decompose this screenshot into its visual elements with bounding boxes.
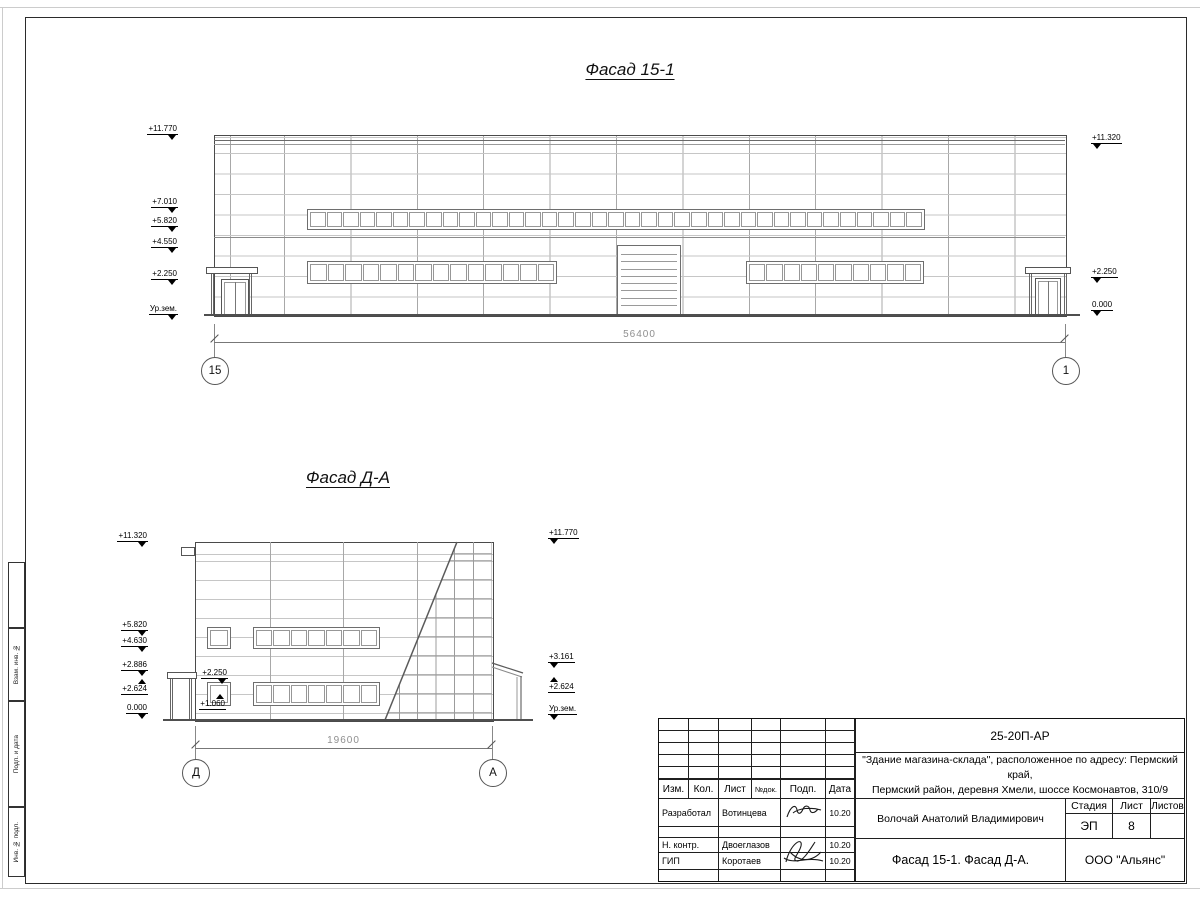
facade2-left-porch-post [170, 679, 173, 719]
elevation-mark: +2.250 [108, 269, 178, 285]
trim-left [2, 7, 3, 889]
facade2-upper-window [207, 627, 231, 649]
tb-header-list: Лист [718, 779, 752, 799]
tb-name: Двоеглазов [718, 837, 781, 853]
elevation-mark: +5.820 [108, 216, 178, 232]
side-stamp-vzam: Взам. инв. № [8, 628, 25, 701]
facade1-parapet-line [214, 140, 1065, 141]
facade2-title: Фасад Д-А [258, 468, 438, 488]
tb-name: Вотинцева [718, 798, 781, 827]
facade2-lower-window-band [253, 682, 380, 706]
facade1-left-canopy [206, 267, 258, 274]
axis-bubble-d: Д [182, 759, 210, 787]
tb-date: 10.20 [825, 837, 855, 853]
elevation-mark: +2.624 [78, 679, 148, 695]
facade1-left-porch-post [249, 274, 252, 314]
elevation-mark: +4.550 [108, 237, 178, 253]
facade1-left-porch-post [211, 274, 214, 314]
elevation-mark: +11.320 [78, 531, 148, 547]
facade1-left-door [221, 279, 249, 315]
tb-sheets-label: Листов [1150, 798, 1185, 814]
facade2-ground-line [163, 719, 533, 721]
tb-project: "Здание магазина-склада", расположенное … [855, 752, 1185, 799]
elevation-mark: +2.624 [548, 677, 618, 693]
elevation-mark: +5.820 [78, 620, 148, 636]
tb-person: Волочай Анатолий Владимирович [855, 798, 1066, 839]
tb-stage-label: Стадия [1065, 798, 1113, 814]
elevation-mark: +11.770 [108, 124, 178, 140]
elevation-mark: 0.000 [1091, 300, 1161, 316]
tb-project-line1: "Здание магазина-склада", расположенное … [856, 753, 1184, 783]
window-level-mark: +2.250 [186, 668, 228, 684]
elevation-mark: +11.320 [1091, 133, 1161, 149]
facade1-lower-right-window-band [746, 261, 924, 284]
tb-header-data: Дата [825, 779, 855, 799]
elevation-mark: +2.886 [78, 660, 148, 676]
elevation-mark: +2.250 [1091, 267, 1161, 283]
facade2-dimension: 19600 [195, 748, 492, 749]
tb-empty-row [825, 869, 855, 882]
elevation-mark: +3.161 [548, 652, 618, 668]
tb-code: 25-20П-АР [855, 718, 1185, 753]
axis-bubble-1: 1 [1052, 357, 1080, 385]
facade2-middle-window-band [253, 627, 380, 649]
extension-line [1065, 324, 1066, 358]
facade1-upper-window-band [307, 209, 925, 230]
tb-date: 10.20 [825, 852, 855, 870]
facade1-ground-line [204, 314, 1080, 316]
trim-bottom [0, 888, 1200, 889]
axis-bubble-15: 15 [201, 357, 229, 385]
tb-empty-row [780, 869, 826, 882]
tb-date: 10.20 [825, 798, 855, 827]
facade1-lower-left-window-band [307, 261, 557, 284]
tb-sheet-value: 8 [1112, 813, 1151, 839]
tb-stage-value: ЭП [1065, 813, 1113, 839]
tb-org: ООО "Альянс" [1065, 838, 1185, 882]
elevation-mark: +4.630 [78, 636, 148, 652]
elevation-mark: +11.770 [548, 528, 618, 544]
dimension-value: 56400 [214, 329, 1065, 340]
tb-header-izm: Изм. [658, 779, 689, 799]
drawing-sheet: Фасад 15-1 +11.770 +7.010 +5.820 +4.550 … [0, 0, 1200, 900]
facade1-slab-line [214, 237, 1065, 238]
tb-role: Н. контр. [658, 837, 719, 853]
axis-bubble-a: А [479, 759, 507, 787]
tb-role: ГИП [658, 852, 719, 870]
signature-icon [784, 801, 824, 823]
trim-top [0, 7, 1200, 8]
tb-header-kol: Кол. [688, 779, 719, 799]
tb-empty-row [718, 869, 781, 882]
signature-icon [780, 834, 826, 868]
window-level-mark: +1.060 [184, 694, 226, 710]
elevation-mark: +7.010 [108, 197, 178, 213]
facade1-sectional-gate [617, 245, 681, 315]
side-stamp-inv: Инв. № подл. [8, 807, 25, 877]
facade1-dimension: 56400 [214, 342, 1065, 343]
elevation-mark-ground: Ур.зем. [108, 304, 178, 320]
tb-project-line2: Пермский район, деревня Хмели, шоссе Кос… [872, 783, 1168, 798]
side-stamp-empty [8, 562, 25, 628]
facade2-roof-vent [181, 547, 195, 556]
side-stamp-podp: Подп. и дата [8, 701, 25, 807]
tb-sheets-value [1150, 813, 1185, 839]
facade1-right-porch-post [1064, 274, 1067, 315]
tb-sheet-label: Лист [1112, 798, 1151, 814]
elevation-mark-ground: Ур.зем. [548, 704, 618, 720]
elevation-mark: 0.000 [78, 703, 148, 719]
facade1-right-canopy [1025, 267, 1071, 274]
tb-header-podp: Подп. [780, 779, 826, 799]
facade1-right-porch-post [1029, 274, 1032, 315]
tb-name: Коротаев [718, 852, 781, 870]
tb-doc-title: Фасад 15-1. Фасад Д-А. [855, 838, 1066, 882]
tb-header-ndok: №док. [751, 779, 781, 799]
tb-empty-row [658, 869, 719, 882]
facade1-parapet-line2 [214, 144, 1065, 145]
tb-role: Разработал [658, 798, 719, 827]
facade1-right-door [1035, 278, 1061, 315]
dimension-value: 19600 [195, 735, 492, 746]
facade1-title: Фасад 15-1 [520, 60, 740, 80]
